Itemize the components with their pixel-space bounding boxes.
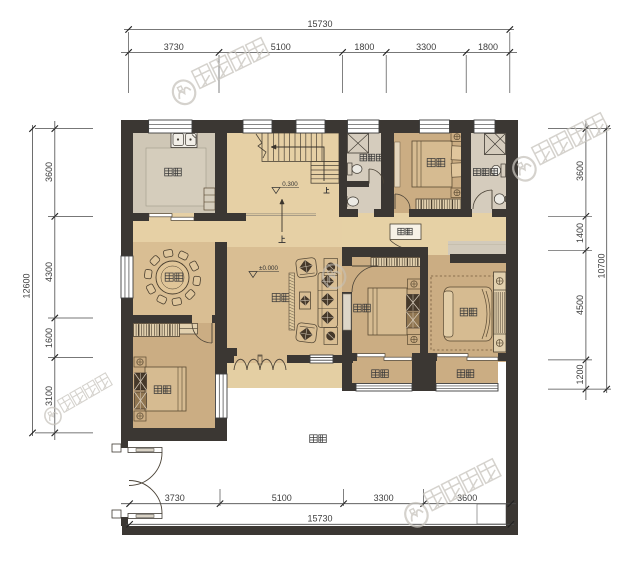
svg-text:1600: 1600 xyxy=(44,328,54,348)
svg-text:1800: 1800 xyxy=(478,42,498,52)
svg-text:0.300: 0.300 xyxy=(282,181,298,188)
svg-text:3730: 3730 xyxy=(165,493,185,503)
svg-text:1200: 1200 xyxy=(575,364,585,384)
svg-text:3730: 3730 xyxy=(164,42,184,52)
svg-text:3600: 3600 xyxy=(575,161,585,181)
svg-text:3300: 3300 xyxy=(374,493,394,503)
svg-text:5100: 5100 xyxy=(272,493,292,503)
svg-text:4500: 4500 xyxy=(575,295,585,315)
svg-text:5100: 5100 xyxy=(271,42,291,52)
svg-text:3600: 3600 xyxy=(457,493,477,503)
svg-text:15730: 15730 xyxy=(307,514,332,524)
svg-text:1400: 1400 xyxy=(575,223,585,243)
svg-text:3600: 3600 xyxy=(44,162,54,182)
svg-text:15730: 15730 xyxy=(307,19,332,29)
svg-text:1800: 1800 xyxy=(354,42,374,52)
svg-text:±0.000: ±0.000 xyxy=(259,265,278,272)
svg-text:3100: 3100 xyxy=(44,386,54,406)
svg-text:12600: 12600 xyxy=(22,273,32,298)
svg-text:4300: 4300 xyxy=(44,262,54,282)
svg-text:3300: 3300 xyxy=(416,42,436,52)
svg-text:10700: 10700 xyxy=(597,253,607,278)
